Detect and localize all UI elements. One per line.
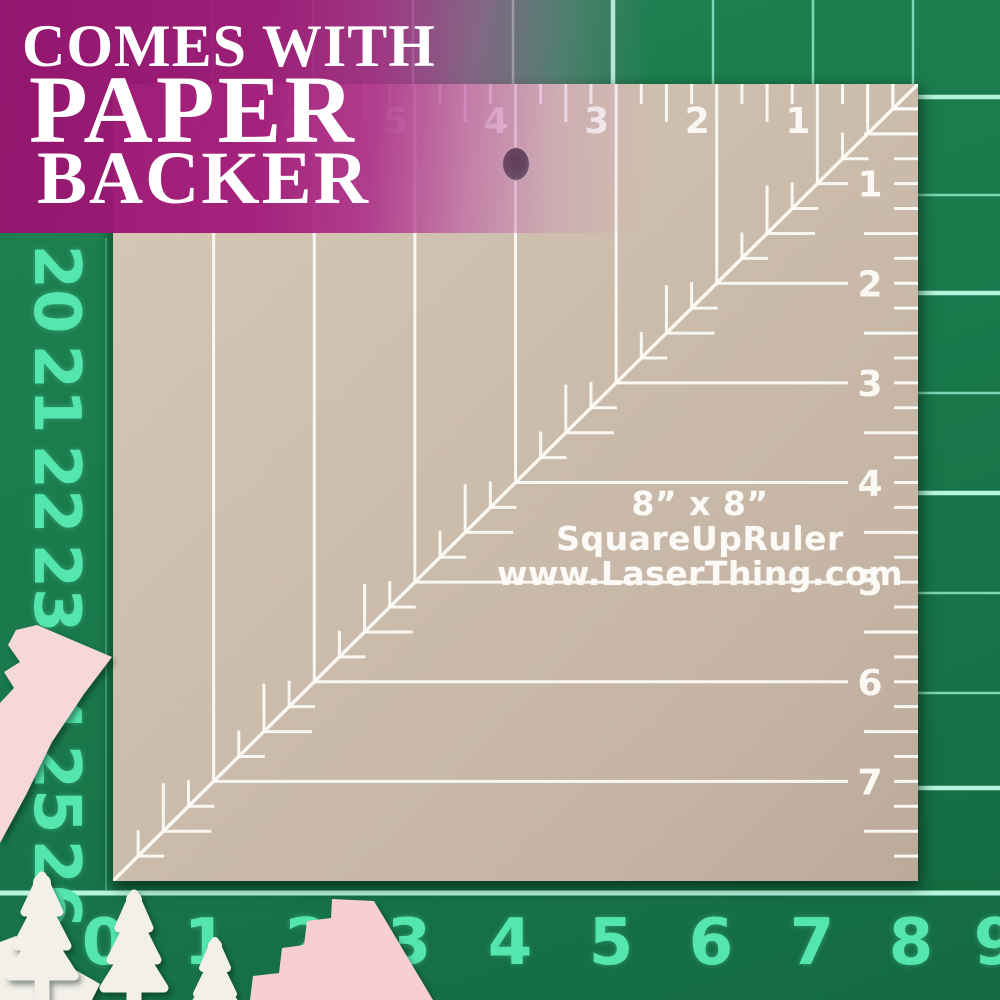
mat-bottom-number: 9 — [974, 911, 1000, 975]
mat-bottom-number: 3 — [387, 911, 432, 975]
mat-bottom-number: 6 — [689, 911, 734, 975]
mat-left-number: 20 — [24, 244, 88, 333]
website-label: www.LaserThing.com — [450, 556, 950, 591]
size-label: 8” x 8” — [450, 486, 950, 521]
promo-banner: COMES WITH PAPER BACKER — [0, 0, 690, 233]
mat-left-number: 24 — [24, 643, 88, 732]
right-scale-label: 6 — [857, 663, 882, 704]
top-scale-label: 1 — [785, 101, 810, 142]
mat-left-number: 26 — [24, 839, 88, 928]
right-scale-label: 7 — [857, 762, 882, 803]
right-scale-label: 2 — [857, 264, 882, 305]
mat-bottom-number: 8 — [889, 911, 934, 975]
mat-bottom-number: 4 — [488, 911, 533, 975]
right-scale-label: 1 — [857, 165, 882, 206]
right-scale-label: 3 — [857, 364, 882, 405]
mat-bottom-number: 2 — [285, 911, 330, 975]
mat-left-number: 23 — [24, 543, 88, 632]
mat-bottom-number: 0 — [82, 911, 127, 975]
mat-left-number: 25 — [24, 744, 88, 833]
banner-line-3: BACKER — [37, 141, 370, 216]
mat-bottom-number: 1 — [184, 911, 229, 975]
mat-left-number: 21 — [24, 344, 88, 433]
product-photo: 20212223242526 0123456789 76543211234567 — [0, 0, 1000, 1000]
mat-left-number: 22 — [24, 444, 88, 533]
mat-bottom-number: 7 — [790, 911, 835, 975]
ruler-center-label: 8” x 8” SquareUpRuler www.LaserThing.com — [450, 486, 950, 591]
mat-bottom-number: 5 — [589, 911, 634, 975]
brand-label: SquareUpRuler — [450, 521, 950, 556]
